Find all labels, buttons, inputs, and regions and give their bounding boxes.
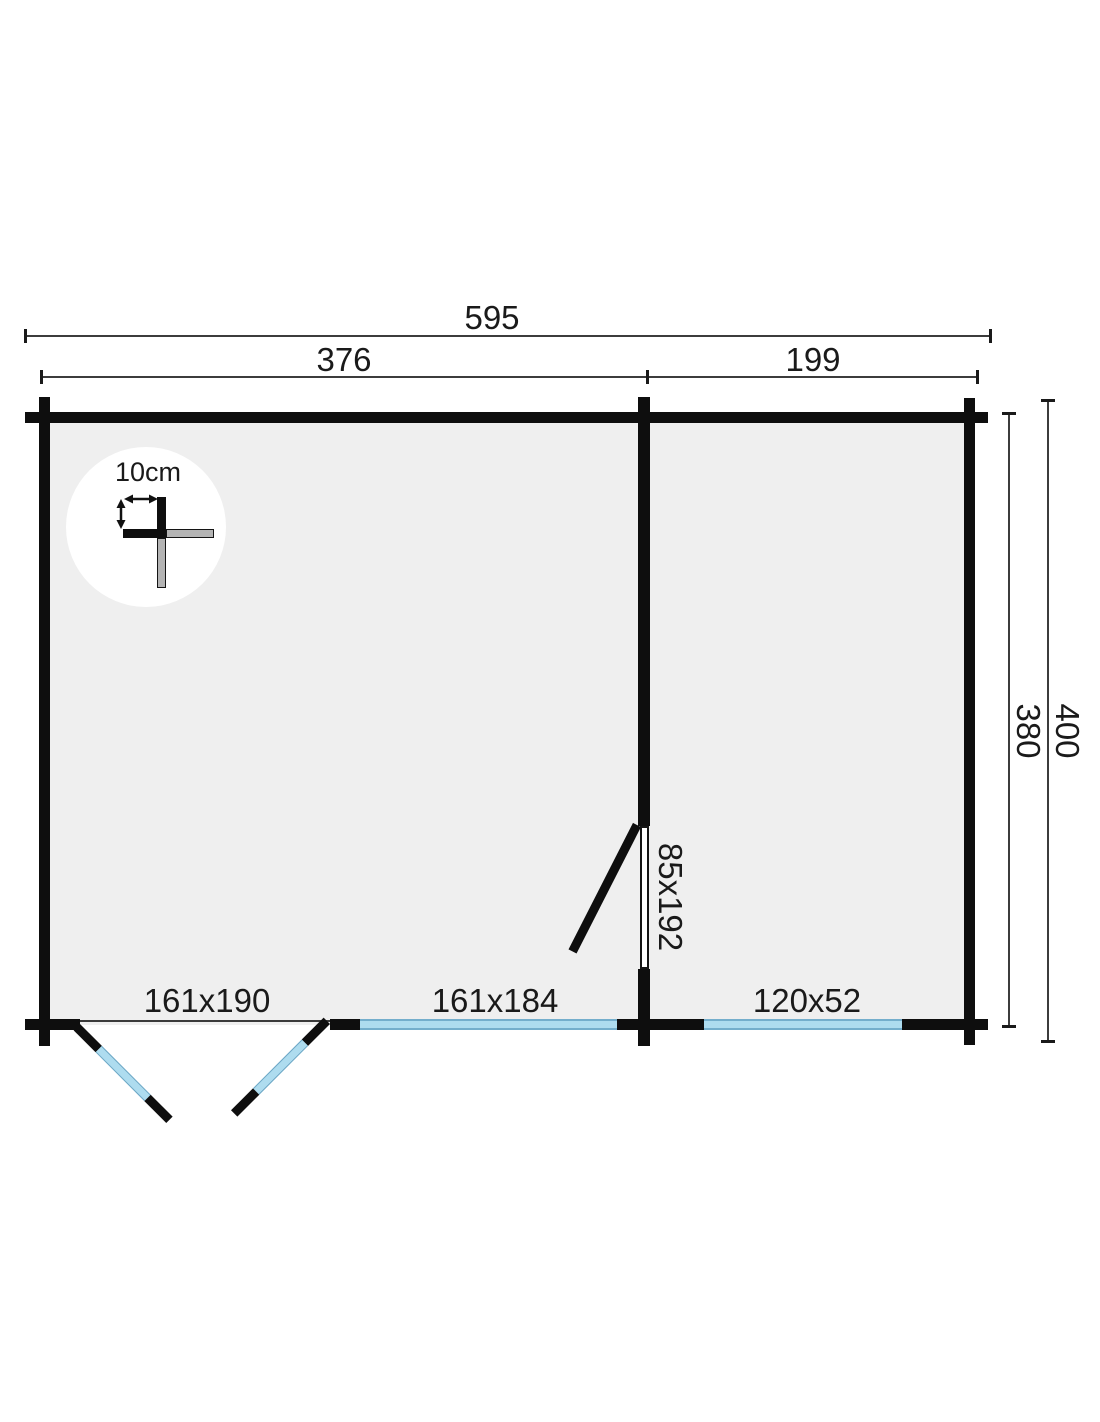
door-leaf-glass (96, 1046, 151, 1101)
wall-left (39, 397, 50, 1046)
dim-tick (646, 370, 649, 384)
label-small-window: 120x52 (753, 984, 861, 1017)
door-leaf-edge (231, 1088, 259, 1116)
wall-top (25, 412, 988, 423)
wall-bottom-segment (902, 1019, 988, 1030)
wall-bottom-segment (617, 1019, 704, 1030)
dim-tick (40, 370, 43, 384)
wall-detail-circle: 10cm (66, 447, 226, 607)
label-front-double-door: 161x190 (144, 984, 271, 1017)
dim-tick (976, 370, 979, 384)
dim-tick (1002, 412, 1016, 415)
double-door-leaf-left (74, 1024, 173, 1123)
dim-tick (1041, 1040, 1055, 1043)
wall-interior-lower (638, 969, 650, 1046)
wall-bottom-segment (25, 1019, 80, 1030)
door-leaf-hinge (74, 1024, 102, 1052)
door-leaf-glass (253, 1040, 308, 1095)
door-leaf-edge (144, 1095, 172, 1123)
wall-interior-upper (638, 397, 650, 826)
dim-label-right-section: 199 (785, 343, 840, 376)
interior-door-frame (640, 826, 649, 969)
dim-label-outer-depth: 400 (1051, 703, 1084, 758)
wall-right (964, 398, 975, 1045)
label-interior-door: 85x192 (654, 843, 687, 951)
window-161x184 (360, 1019, 617, 1030)
window-120x52 (704, 1019, 902, 1030)
dim-label-left-section: 376 (316, 343, 371, 376)
label-large-window: 161x184 (432, 984, 559, 1017)
dim-label-total-width: 595 (464, 301, 519, 334)
dim-tick (24, 329, 27, 343)
wall-bottom-segment (330, 1019, 360, 1030)
floor-plan-canvas: 595 376 199 380 400 10cm (0, 0, 1100, 1422)
dim-tick (989, 329, 992, 343)
double-door-leaf-right (231, 1018, 330, 1117)
dim-tick (1002, 1025, 1016, 1028)
dim-tick (1041, 399, 1055, 402)
door-threshold (80, 1020, 330, 1022)
dim-label-inner-depth: 380 (1012, 703, 1045, 758)
double-arrow-icon (66, 447, 226, 607)
